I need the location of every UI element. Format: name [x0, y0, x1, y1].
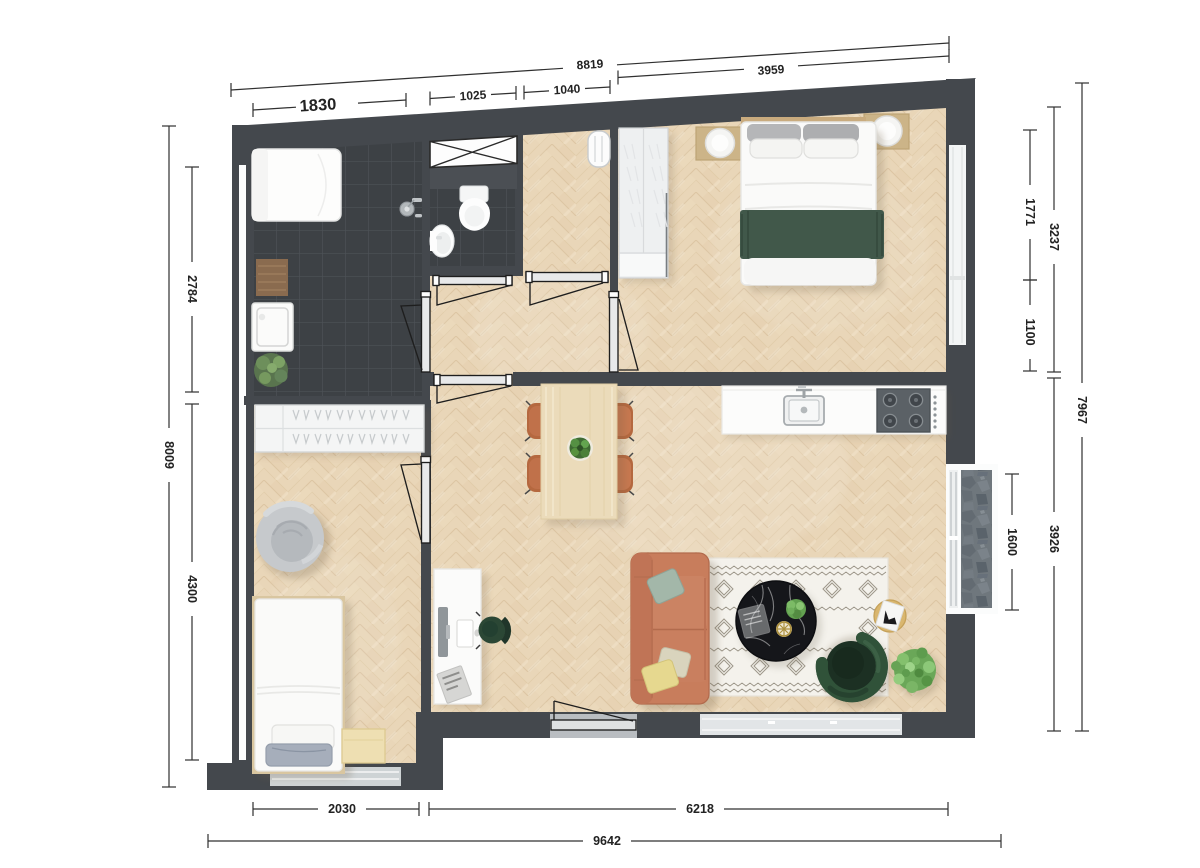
- svg-text:3959: 3959: [757, 62, 785, 78]
- svg-text:4300: 4300: [185, 575, 199, 603]
- svg-text:1100: 1100: [1023, 318, 1037, 345]
- svg-text:2030: 2030: [328, 802, 356, 816]
- svg-text:1025: 1025: [459, 88, 487, 104]
- svg-text:1771: 1771: [1023, 198, 1037, 226]
- svg-text:6218: 6218: [686, 802, 714, 816]
- svg-text:2784: 2784: [185, 275, 199, 303]
- svg-text:3237: 3237: [1047, 223, 1061, 251]
- svg-text:7967: 7967: [1075, 396, 1089, 424]
- svg-text:9642: 9642: [593, 834, 621, 848]
- svg-text:1600: 1600: [1005, 528, 1019, 556]
- svg-text:1040: 1040: [553, 82, 581, 98]
- svg-text:8819: 8819: [576, 57, 604, 73]
- svg-text:8009: 8009: [162, 441, 176, 469]
- svg-text:3926: 3926: [1047, 525, 1061, 553]
- svg-text:1830: 1830: [299, 95, 337, 115]
